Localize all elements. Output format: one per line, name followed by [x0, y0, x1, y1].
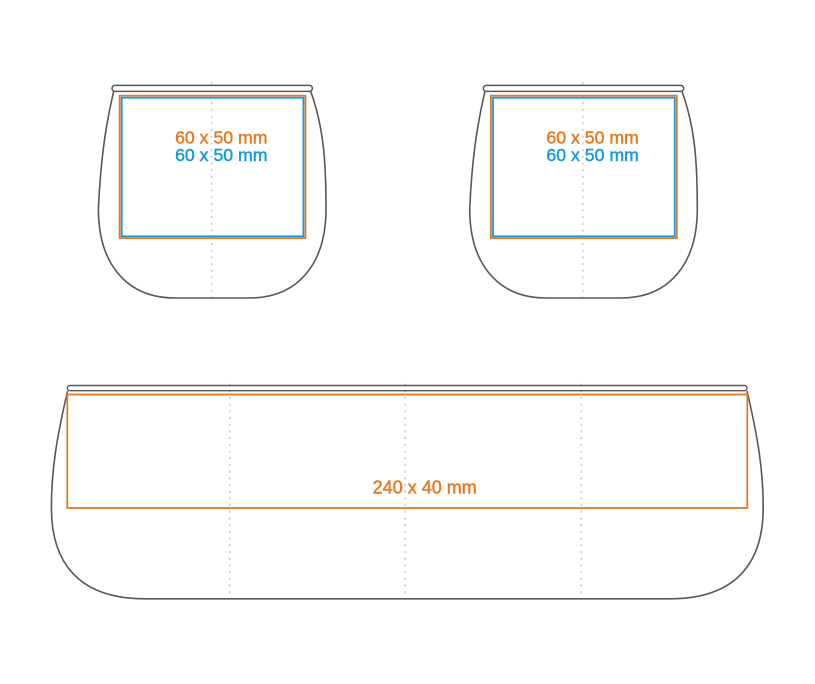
svg-text:60 x 50 mm: 60 x 50 mm	[175, 145, 267, 165]
svg-text:240 x 40 mm: 240 x 40 mm	[373, 477, 477, 497]
